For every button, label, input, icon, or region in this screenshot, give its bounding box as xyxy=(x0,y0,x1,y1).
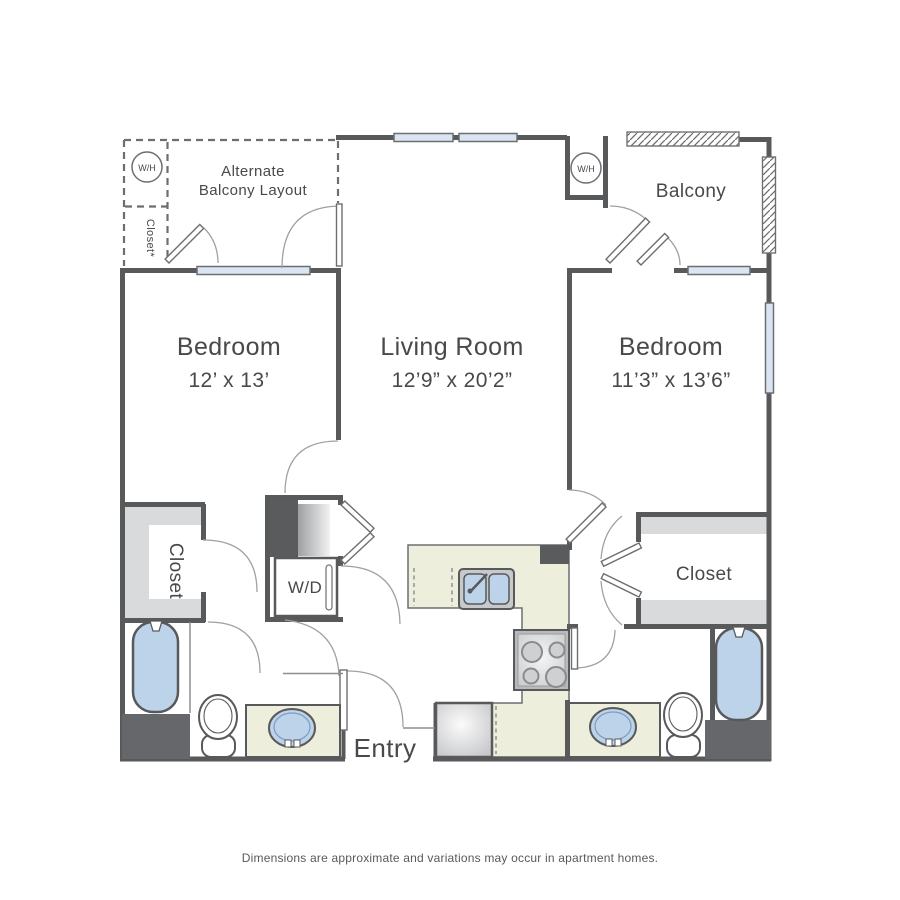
alt-balcony-label-line2: Balcony Layout xyxy=(199,182,308,199)
closet-right-label: Closet xyxy=(676,564,733,585)
toilet-right xyxy=(664,693,702,757)
room-dims-living: 12’9” x 20’2” xyxy=(392,369,513,392)
door-arc xyxy=(569,490,606,505)
stove xyxy=(514,630,569,690)
door-arc xyxy=(341,566,400,624)
wd-label: W/D xyxy=(288,578,322,597)
burner xyxy=(524,669,539,684)
wh-label-alt: W/H xyxy=(138,163,156,173)
shelf xyxy=(640,516,769,534)
wh-label: W/H xyxy=(577,164,595,174)
sink-faucet-icon xyxy=(285,740,291,747)
window xyxy=(766,303,774,393)
floorplan-canvas: Bedroom 12’ x 13’ Living Room 12’9” x 20… xyxy=(0,0,900,900)
burner xyxy=(546,667,566,687)
kitchen-sink xyxy=(459,569,514,609)
door-leaf xyxy=(637,234,668,265)
door-arc xyxy=(668,238,680,265)
door-leaf xyxy=(341,533,374,564)
door-leaf-layer xyxy=(165,204,668,730)
sink-faucet-icon xyxy=(294,740,300,747)
door-arc xyxy=(347,671,403,727)
shelf xyxy=(640,600,769,624)
room-label-bedroom-right: Bedroom xyxy=(619,333,723,361)
closet-left-label: Closet xyxy=(165,543,186,600)
door-arc-layer xyxy=(203,206,680,727)
window xyxy=(197,267,310,275)
door-leaf xyxy=(165,224,204,263)
water-heaters xyxy=(132,152,601,183)
refrigerator xyxy=(436,703,492,757)
bathtub-right xyxy=(716,627,762,720)
entry-label: Entry xyxy=(354,733,417,763)
cabinet-gradient-block xyxy=(298,504,330,556)
floorplan-drawing: Bedroom 12’ x 13’ Living Room 12’9” x 20… xyxy=(0,0,900,900)
vanity-left xyxy=(246,705,340,757)
door-leaf xyxy=(601,543,641,566)
kitchen-corner-block xyxy=(540,545,569,564)
room-dims-bedroom-left: 12’ x 13’ xyxy=(188,369,269,392)
railing-hatch xyxy=(763,157,776,253)
door-arc xyxy=(577,630,615,668)
door-leaf xyxy=(341,501,374,532)
railing-hatch xyxy=(627,132,739,146)
door-arc xyxy=(203,540,257,592)
door-arc xyxy=(285,441,338,493)
sink-faucet-icon xyxy=(615,739,621,746)
shelf xyxy=(124,599,201,618)
balcony-label: Balcony xyxy=(656,181,726,202)
disclaimer-text: Dimensions are approximate and variation… xyxy=(242,851,658,865)
wall-block xyxy=(269,500,298,557)
toilet-left xyxy=(199,695,237,757)
door-arc xyxy=(285,620,339,676)
vanity-right xyxy=(569,703,660,757)
burner xyxy=(550,643,565,658)
room-label-living: Living Room xyxy=(380,333,523,361)
room-dims-bedroom-right: 11’3” x 13’6” xyxy=(611,369,730,392)
door-leaf xyxy=(337,204,343,266)
alt-balcony-label-line1: Alternate xyxy=(221,163,285,180)
room-label-bedroom-left: Bedroom xyxy=(177,333,281,361)
door-arc xyxy=(610,206,649,222)
door-leaf xyxy=(601,574,641,597)
entry-door-leaf xyxy=(340,670,347,730)
door-leaf xyxy=(566,503,606,543)
wall-block xyxy=(705,720,771,759)
sink-faucet-icon xyxy=(606,739,612,746)
alt-closet-label: Closet* xyxy=(144,219,156,258)
window xyxy=(394,134,453,142)
door-leaf xyxy=(572,628,578,669)
window xyxy=(688,267,750,275)
window xyxy=(459,134,517,142)
burner xyxy=(522,642,542,662)
wall-block xyxy=(122,714,190,759)
door-arc xyxy=(208,622,260,673)
bathtub-left xyxy=(133,621,178,712)
door-arc xyxy=(204,228,218,263)
wall-layer xyxy=(120,136,772,761)
door-arc xyxy=(282,206,341,268)
